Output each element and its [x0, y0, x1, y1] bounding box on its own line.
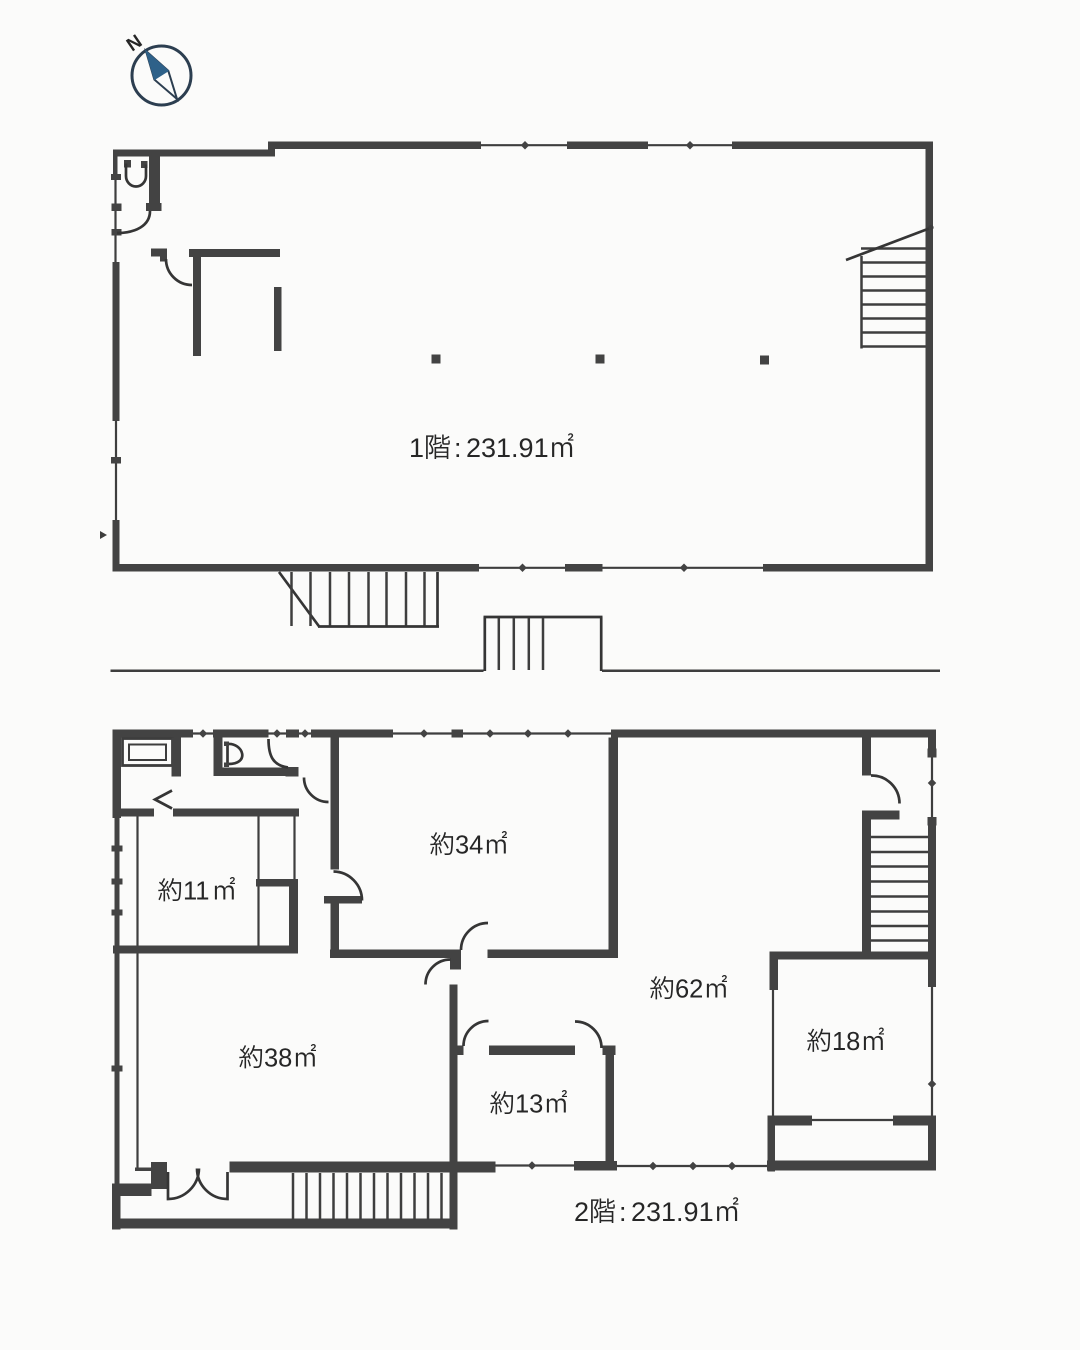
svg-text:13: 13	[515, 1091, 543, 1119]
svg-text:2: 2	[574, 1197, 589, 1227]
svg-text:1: 1	[409, 433, 424, 463]
svg-text:62: 62	[675, 976, 703, 1004]
svg-text:231.91: 231.91	[631, 1197, 714, 1227]
svg-text:11: 11	[183, 878, 209, 906]
svg-text:18: 18	[832, 1028, 860, 1056]
svg-text:38: 38	[264, 1045, 292, 1073]
svg-text::: :	[454, 433, 462, 463]
svg-text:231.91: 231.91	[466, 433, 549, 463]
svg-text:34: 34	[455, 832, 483, 860]
svg-text::: :	[619, 1197, 627, 1227]
